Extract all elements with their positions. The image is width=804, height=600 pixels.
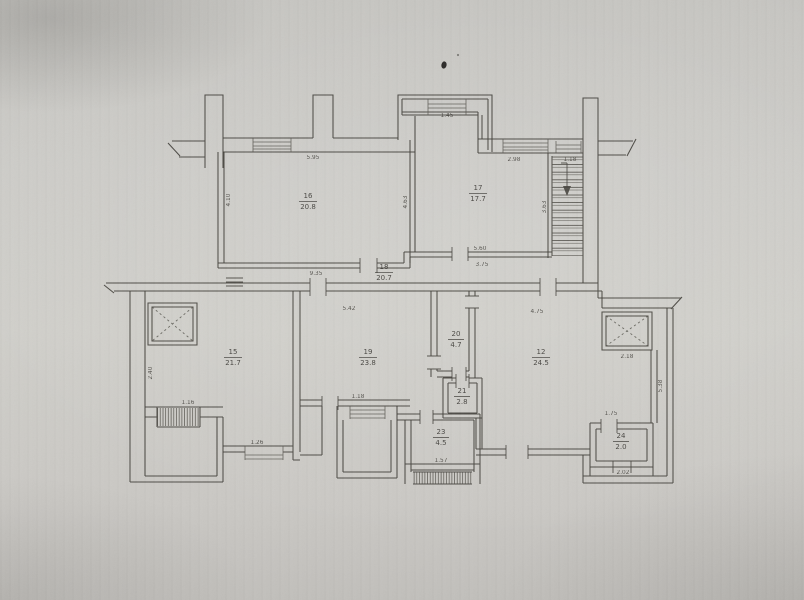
dimension-label: 2.18 bbox=[621, 354, 634, 360]
svg-text:2.8: 2.8 bbox=[456, 398, 467, 406]
dimension-label: 3.75 bbox=[476, 262, 489, 268]
svg-text:16: 16 bbox=[304, 192, 313, 200]
dimension-label: 2.02 bbox=[617, 470, 630, 476]
svg-text:23.8: 23.8 bbox=[360, 359, 376, 367]
svg-text:4.7: 4.7 bbox=[450, 341, 461, 349]
dimension-label: 1.18 bbox=[352, 394, 365, 400]
dimension-label: 9.35 bbox=[310, 271, 323, 277]
paper-grain-texture bbox=[0, 0, 804, 600]
svg-text:4.5: 4.5 bbox=[435, 439, 446, 447]
svg-text:12: 12 bbox=[537, 348, 546, 356]
dimension-label: 4.75 bbox=[531, 309, 544, 315]
scanned-paper-background: 16 20.8 17 17.7 18 20.7 15 21.7 19 23.8 … bbox=[0, 0, 804, 600]
svg-text:20.8: 20.8 bbox=[300, 203, 316, 211]
svg-text:24.5: 24.5 bbox=[533, 359, 549, 367]
svg-text:21: 21 bbox=[458, 387, 467, 395]
dimension-label: 2.40 bbox=[148, 366, 154, 379]
dimension-label: 1.45 bbox=[441, 113, 454, 119]
hatched-window-room15 bbox=[157, 408, 200, 426]
floor-plan-scan: 16 20.8 17 17.7 18 20.7 15 21.7 19 23.8 … bbox=[0, 0, 804, 600]
dimension-label: 5.60 bbox=[474, 246, 487, 252]
dimension-label: 4.10 bbox=[226, 193, 232, 206]
dimension-label: 1.57 bbox=[435, 458, 448, 464]
dimension-label: 5.95 bbox=[307, 155, 320, 161]
hatched-window-room23 bbox=[413, 473, 472, 484]
stair-treads bbox=[552, 156, 583, 256]
svg-text:23: 23 bbox=[437, 428, 446, 436]
svg-text:2.0: 2.0 bbox=[615, 443, 626, 451]
dimension-label: 1.18 bbox=[564, 157, 577, 163]
svg-text:24: 24 bbox=[617, 432, 626, 440]
svg-text:20.7: 20.7 bbox=[376, 274, 392, 282]
svg-text:19: 19 bbox=[364, 348, 373, 356]
staircase bbox=[552, 156, 583, 256]
dimension-label: 5.42 bbox=[343, 306, 356, 312]
svg-text:15: 15 bbox=[229, 348, 238, 356]
dimension-label: 5.38 bbox=[658, 379, 664, 392]
dimension-label: 1.26 bbox=[251, 440, 264, 446]
svg-text:21.7: 21.7 bbox=[225, 359, 241, 367]
svg-text:18: 18 bbox=[380, 263, 389, 271]
dimension-label: 1.75 bbox=[605, 411, 618, 417]
dimension-label: 1.16 bbox=[182, 400, 195, 406]
dimension-label: 3.63 bbox=[542, 200, 548, 213]
svg-text:20: 20 bbox=[452, 330, 461, 338]
dimension-label: 2.98 bbox=[508, 157, 521, 163]
svg-text:17: 17 bbox=[474, 184, 483, 192]
dimension-label: 4.63 bbox=[403, 195, 409, 208]
ink-speck bbox=[457, 54, 459, 56]
svg-text:17.7: 17.7 bbox=[470, 195, 486, 203]
